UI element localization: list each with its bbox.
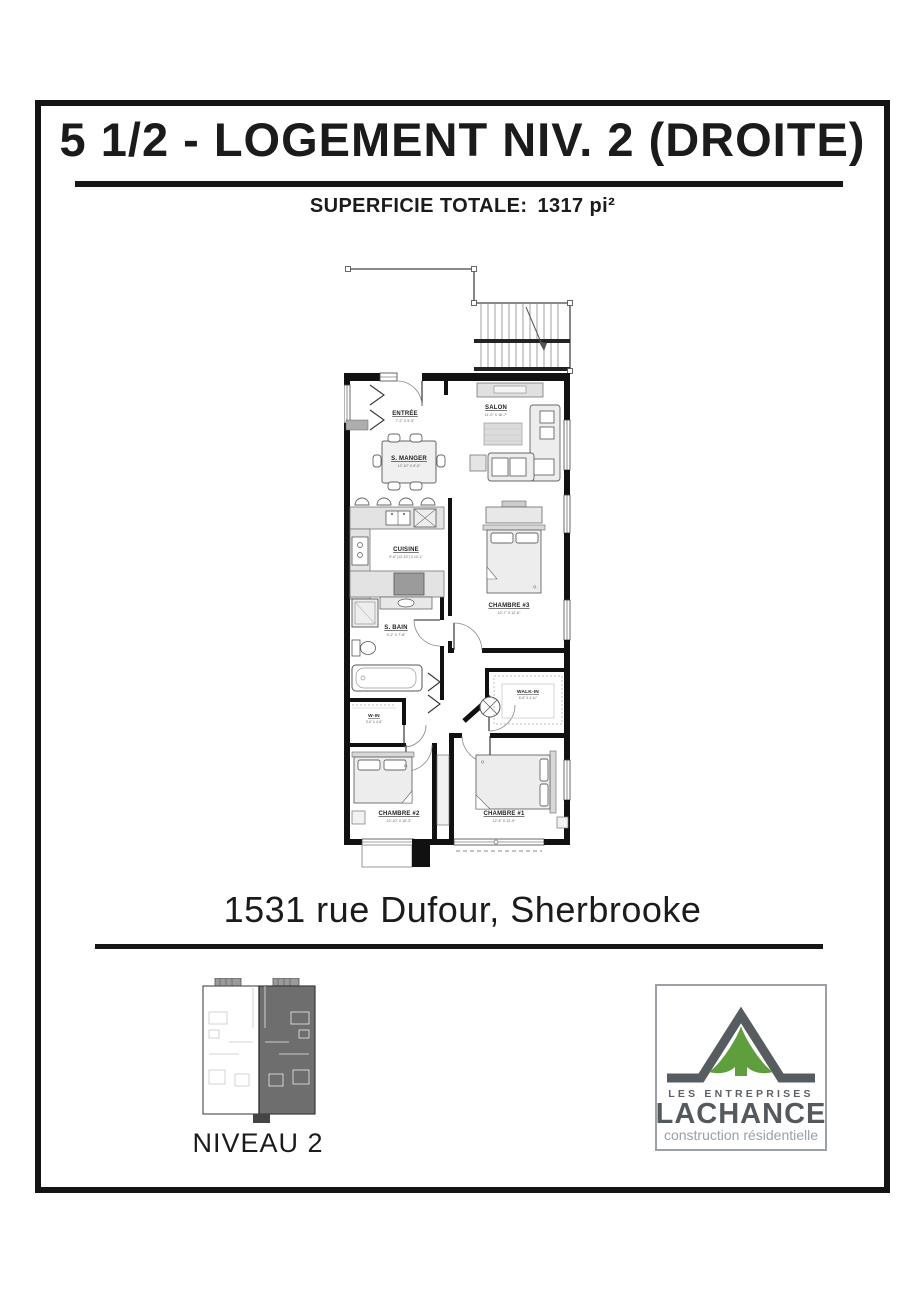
room-dims-salon: 11'-0" X 16'-7" — [485, 413, 508, 417]
room-dims-chambre3: 10'-7" X 12'-6" — [498, 611, 521, 615]
bathroom-fixtures — [352, 597, 432, 691]
room-dims-entree: 7'-2" X 5'-5" — [396, 419, 415, 423]
room-dims-walkin: 6'-6" X 4'-11" — [519, 696, 537, 700]
room-dims-win: 3'-6" X 4'-6" — [366, 720, 383, 724]
superficie-label: SUPERFICIE TOTALE: — [310, 195, 528, 217]
bedroom3-furniture: Q. — [483, 501, 545, 593]
title-divider — [75, 181, 843, 187]
address-divider — [95, 944, 823, 949]
room-label-chambre3: CHAMBRE #3 — [488, 603, 529, 609]
laundry-fixture — [480, 697, 500, 717]
page-title: 5 1/2 - LOGEMENT NIV. 2 (DROITE) — [35, 112, 890, 167]
room-dims-chambre1: 12'-4" X 12'-5" — [493, 819, 516, 823]
room-label-walkin: WALK-IN — [517, 689, 539, 695]
superficie-value: 1317 pi² — [537, 195, 615, 217]
room-label-smanger: S. MANGER — [391, 456, 427, 462]
room-label-chambre2: CHAMBRE #2 — [378, 811, 419, 817]
builder-logo-graphic: LES ENTREPRISES LACHANCE construction ré… — [657, 986, 825, 1149]
room-label-cuisine: CUISINE — [393, 547, 419, 553]
niveau-label: NIVEAU 2 — [158, 1128, 358, 1159]
room-label-salon: SALON — [485, 405, 507, 411]
room-dims-sbain: 9'-2" X 7'-8" — [387, 633, 406, 637]
level-key-plan — [195, 978, 325, 1126]
key-plan-entry-tab — [253, 1114, 270, 1123]
logo-line2: LACHANCE — [657, 1098, 825, 1130]
highlighted-unit-right — [259, 986, 315, 1114]
room-label-chambre1: CHAMBRE #1 — [483, 811, 524, 817]
room-dims-cuisine: 9'-6" (12'-10") X 10'-1" — [389, 555, 423, 559]
bed-size-tag: Q. — [404, 763, 408, 768]
bed-size-tag: Q. — [533, 584, 537, 589]
builder-logo: LES ENTREPRISES LACHANCE construction ré… — [655, 984, 827, 1151]
room-label-win: W-IN — [368, 713, 380, 719]
key-plan-building — [203, 978, 315, 1123]
salon-furniture — [470, 383, 560, 481]
dining-set — [373, 434, 445, 490]
room-dims-chambre2: 10'-10" X 10'-3" — [387, 819, 412, 823]
room-label-sbain: S. BAIN — [384, 625, 407, 631]
floorplan-drawing: Q. Q. Q. ENTRÉE 7'-2" X 5'-5" SALON 11'-… — [344, 255, 580, 875]
hall-wardrobe — [437, 755, 449, 825]
address: 1531 rue Dufour, Sherbrooke — [35, 889, 890, 931]
room-label-entree: ENTRÉE — [392, 409, 418, 417]
exterior-stairs — [346, 267, 573, 374]
room-dims-smanger: 12'-10" X 8'-0" — [398, 464, 421, 468]
bed-size-tag: Q. — [481, 759, 485, 764]
stair-direction-arrow — [539, 342, 547, 351]
superficie-line: SUPERFICIE TOTALE:1317 pi² — [35, 195, 890, 218]
logo-line3: construction résidentielle — [664, 1127, 818, 1143]
